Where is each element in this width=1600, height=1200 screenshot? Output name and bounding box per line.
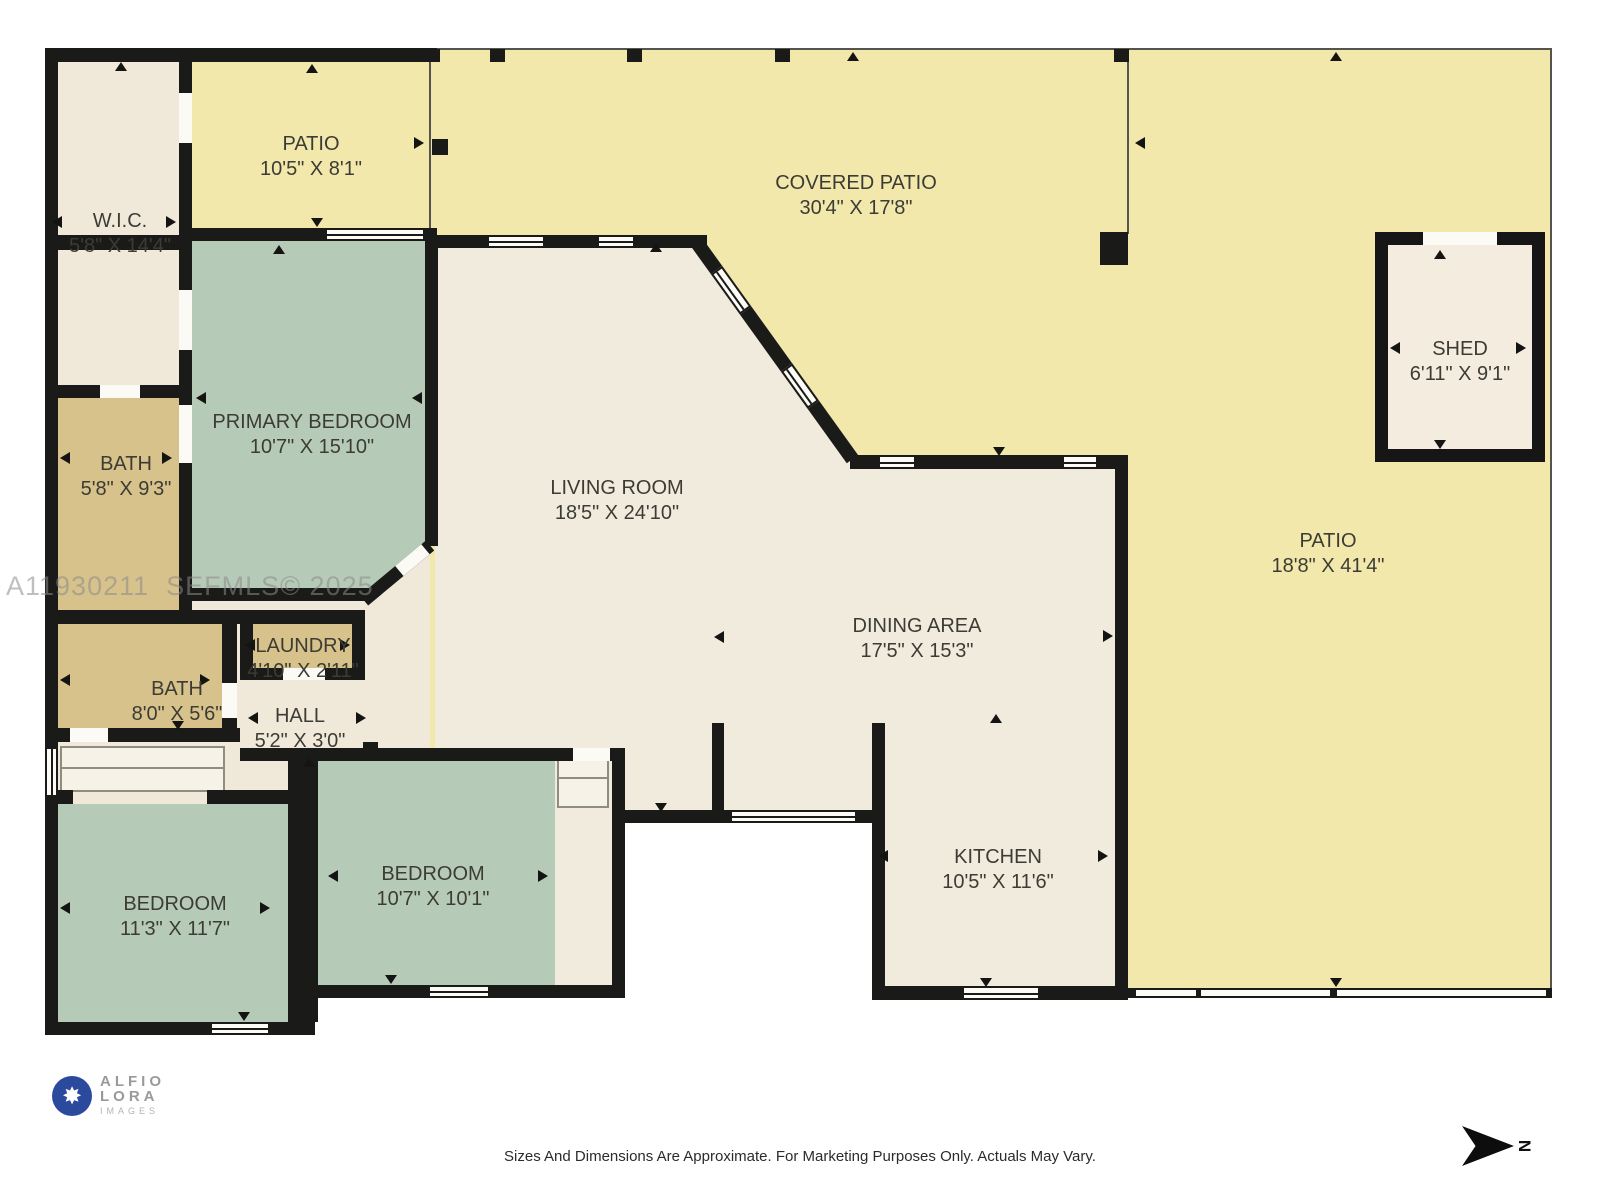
- dimension-marker: [273, 245, 285, 254]
- room-dims: 18'8" X 41'4": [1271, 554, 1384, 579]
- room-name: HALL: [255, 704, 346, 729]
- door-opening: [179, 290, 192, 350]
- wall-segment: [45, 48, 437, 62]
- room-dims: 17'5" X 15'3": [853, 639, 982, 664]
- room-label-covered-patio: COVERED PATIO 30'4" X 17'8": [775, 171, 937, 221]
- aperture-glyph: ✸: [62, 1082, 82, 1110]
- room-name: PATIO: [1271, 529, 1384, 554]
- patio-fence: [1128, 988, 1552, 998]
- window: [325, 228, 425, 241]
- door-opening: [179, 405, 192, 463]
- dimension-marker: [1098, 850, 1108, 862]
- dimension-marker: [1516, 342, 1526, 354]
- room-dims: 10'5" X 11'6": [942, 870, 1054, 895]
- wall-segment: [45, 610, 365, 624]
- room-dims: 4'10" X 2'11": [247, 659, 359, 684]
- window: [962, 986, 1040, 1000]
- dimension-marker: [1330, 978, 1342, 987]
- room-dims: 10'7" X 15'10": [212, 435, 411, 460]
- floor-plan: W.I.C. 5'8" X 14'4" PATIO 10'5" X 8'1" C…: [0, 0, 1600, 1200]
- room-dims: 11'3" X 11'7": [120, 917, 230, 942]
- dimension-marker: [60, 674, 70, 686]
- room-label-shed: SHED 6'11" X 9'1": [1410, 337, 1510, 387]
- room-dims: 10'5" X 8'1": [260, 157, 362, 182]
- closet: [60, 746, 225, 792]
- fence-post: [1128, 988, 1136, 998]
- room-label-patio-top: PATIO 10'5" X 8'1": [260, 132, 362, 182]
- dimension-marker: [1103, 630, 1113, 642]
- window: [428, 985, 490, 998]
- dimension-marker: [385, 975, 397, 984]
- patio-post: [627, 49, 642, 62]
- wall-segment: [437, 235, 707, 248]
- dimension-marker: [655, 803, 667, 812]
- dimension-marker: [714, 631, 724, 643]
- room-label-kitchen: KITCHEN 10'5" X 11'6": [942, 845, 1054, 895]
- room-name: BEDROOM: [120, 892, 230, 917]
- logo: ✸ ALFIO LORA IMAGES: [52, 1074, 165, 1117]
- dimension-marker: [412, 392, 422, 404]
- dimension-marker: [306, 64, 318, 73]
- door-opening: [100, 385, 140, 398]
- dimension-marker: [1434, 440, 1446, 449]
- dimension-marker: [414, 137, 424, 149]
- room-name: PRIMARY BEDROOM: [212, 410, 411, 435]
- room-name: LAUNDRY: [247, 634, 359, 659]
- room-label-bedroom-left: BEDROOM 11'3" X 11'7": [120, 892, 230, 942]
- dimension-marker: [60, 902, 70, 914]
- room-name: KITCHEN: [942, 845, 1054, 870]
- wall-segment: [1115, 455, 1128, 1000]
- wall-segment: [45, 48, 58, 1035]
- room-label-wic: W.I.C. 5'8" X 14'4": [69, 209, 171, 259]
- window: [597, 235, 635, 248]
- north-label: N: [1514, 1140, 1534, 1152]
- patio-post: [490, 49, 505, 62]
- wall-segment: [179, 241, 192, 290]
- dimension-marker: [238, 1012, 250, 1021]
- dimension-marker: [650, 243, 662, 252]
- dimension-marker: [847, 52, 859, 61]
- dimension-marker: [115, 62, 127, 71]
- dimension-marker: [1135, 137, 1145, 149]
- wall-segment: [179, 143, 192, 235]
- fence-post: [1330, 988, 1337, 998]
- wall-segment: [363, 742, 378, 761]
- room-label-primary-bedroom: PRIMARY BEDROOM 10'7" X 15'10": [212, 410, 411, 460]
- room-name: LIVING ROOM: [550, 476, 683, 501]
- dimension-marker: [878, 850, 888, 862]
- room-dims: 5'2" X 3'0": [255, 729, 346, 754]
- patio-post: [432, 139, 448, 155]
- room-dims: 8'0" X 5'6": [132, 702, 223, 727]
- dimension-marker: [993, 447, 1005, 456]
- room-dims: 5'8" X 9'3": [81, 477, 172, 502]
- window: [487, 235, 545, 248]
- dimension-marker: [1434, 250, 1446, 259]
- door-opening: [179, 93, 192, 143]
- patio-edge-line: [437, 48, 1552, 50]
- wall-segment: [108, 728, 240, 742]
- room-dims: 10'7" X 10'1": [376, 887, 489, 912]
- dimension-marker: [311, 218, 323, 227]
- dimension-marker: [990, 714, 1002, 723]
- door-opening: [222, 683, 237, 718]
- dimension-marker: [52, 216, 62, 228]
- room-name: BATH: [132, 677, 223, 702]
- room-name: PATIO: [260, 132, 362, 157]
- wall-segment: [318, 748, 573, 761]
- patio-post: [775, 49, 790, 62]
- room-label-laundry: LAUNDRY 4'10" X 2'11": [247, 634, 359, 684]
- window: [878, 455, 916, 469]
- room-name: BATH: [81, 452, 172, 477]
- patio-edge-line: [1550, 48, 1552, 990]
- dimension-marker: [980, 978, 992, 987]
- dimension-marker: [538, 870, 548, 882]
- wall-segment: [179, 48, 192, 93]
- dimension-marker: [1390, 342, 1400, 354]
- room-dims: 30'4" X 17'8": [775, 196, 937, 221]
- patio-edge-line: [429, 48, 431, 230]
- wall-segment: [610, 748, 625, 761]
- window: [45, 747, 58, 797]
- wall-segment: [425, 241, 438, 546]
- logo-line1: ALFIO: [100, 1074, 165, 1089]
- dimension-marker: [1330, 52, 1342, 61]
- camera-aperture-icon: ✸: [52, 1076, 92, 1116]
- logo-text: ALFIO LORA IMAGES: [100, 1074, 165, 1117]
- window: [210, 1022, 270, 1035]
- room-label-bath-bottom: BATH 8'0" X 5'6": [132, 677, 223, 727]
- room-dims: 18'5" X 24'10": [550, 501, 683, 526]
- wall-segment: [45, 385, 100, 398]
- dimension-marker: [303, 758, 315, 767]
- room-label-dining-area: DINING AREA 17'5" X 15'3": [853, 614, 982, 664]
- room-name: DINING AREA: [853, 614, 982, 639]
- patio-post: [1100, 232, 1128, 265]
- dimension-marker: [328, 870, 338, 882]
- shed-door-opening: [1423, 232, 1497, 245]
- dimension-marker: [196, 392, 206, 404]
- room-label-bedroom-mid: BEDROOM 10'7" X 10'1": [376, 862, 489, 912]
- room-name: COVERED PATIO: [775, 171, 937, 196]
- window: [1062, 455, 1098, 469]
- room-label-bath-top: BATH 5'8" X 9'3": [81, 452, 172, 502]
- room-label-hall: HALL 5'2" X 3'0": [255, 704, 346, 754]
- wall-segment: [612, 748, 625, 998]
- mls-watermark: A11930211 SEFMLS© 2025: [6, 571, 374, 602]
- patio-post: [1114, 49, 1129, 62]
- wall-segment: [712, 723, 724, 823]
- patio-edge-line: [1127, 48, 1129, 234]
- dimension-marker: [260, 902, 270, 914]
- exterior-notch: [625, 823, 872, 1000]
- wall-segment: [857, 810, 885, 823]
- room-name: BEDROOM: [376, 862, 489, 887]
- room-label-living-room: LIVING ROOM 18'5" X 24'10": [550, 476, 683, 526]
- wall-segment: [207, 790, 288, 804]
- dimension-marker: [356, 712, 366, 724]
- door-opening: [70, 728, 108, 742]
- room-dims: 5'8" X 14'4": [69, 234, 171, 259]
- logo-line3: IMAGES: [100, 1106, 165, 1117]
- wall-segment: [140, 385, 192, 398]
- wall-segment: [222, 610, 237, 683]
- wall-segment: [45, 1022, 315, 1035]
- fence-post: [1196, 988, 1201, 998]
- room-label-patio-right: PATIO 18'8" X 41'4": [1271, 529, 1384, 579]
- sliding-door: [730, 810, 857, 823]
- room-name: SHED: [1410, 337, 1510, 362]
- wall-segment: [45, 728, 70, 742]
- room-dims: 6'11" X 9'1": [1410, 362, 1510, 387]
- disclaimer-text: Sizes And Dimensions Are Approximate. Fo…: [0, 1148, 1600, 1165]
- wall-segment: [625, 810, 730, 823]
- dimension-marker: [60, 452, 70, 464]
- room-name: W.I.C.: [69, 209, 171, 234]
- door-opening: [573, 748, 610, 761]
- wall-segment: [288, 748, 318, 1022]
- fence-post: [1546, 988, 1552, 998]
- logo-line2: LORA: [100, 1089, 165, 1104]
